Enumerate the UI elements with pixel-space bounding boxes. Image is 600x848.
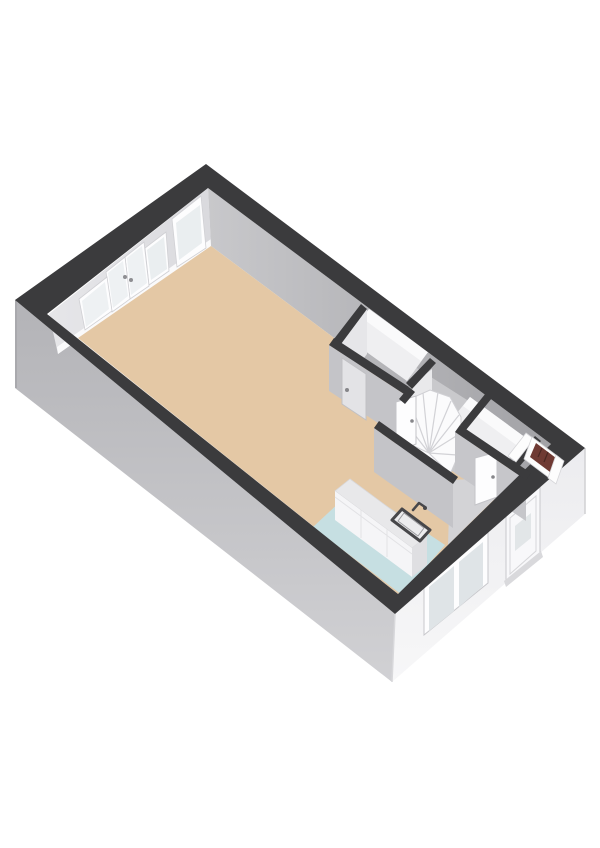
- kitchen-faucet-base: [423, 506, 427, 510]
- floorplan-3d-render: [0, 0, 600, 848]
- west-corner-edge: [15, 300, 17, 388]
- 3d-floorplan: [0, 0, 600, 848]
- floorplan-page: [0, 0, 600, 848]
- stair-door-handle: [410, 419, 414, 423]
- hall-door-handle: [491, 475, 495, 479]
- closet-door-handle: [345, 388, 349, 392]
- french-door-handle-a: [123, 275, 127, 279]
- french-door-handle-b: [129, 278, 133, 282]
